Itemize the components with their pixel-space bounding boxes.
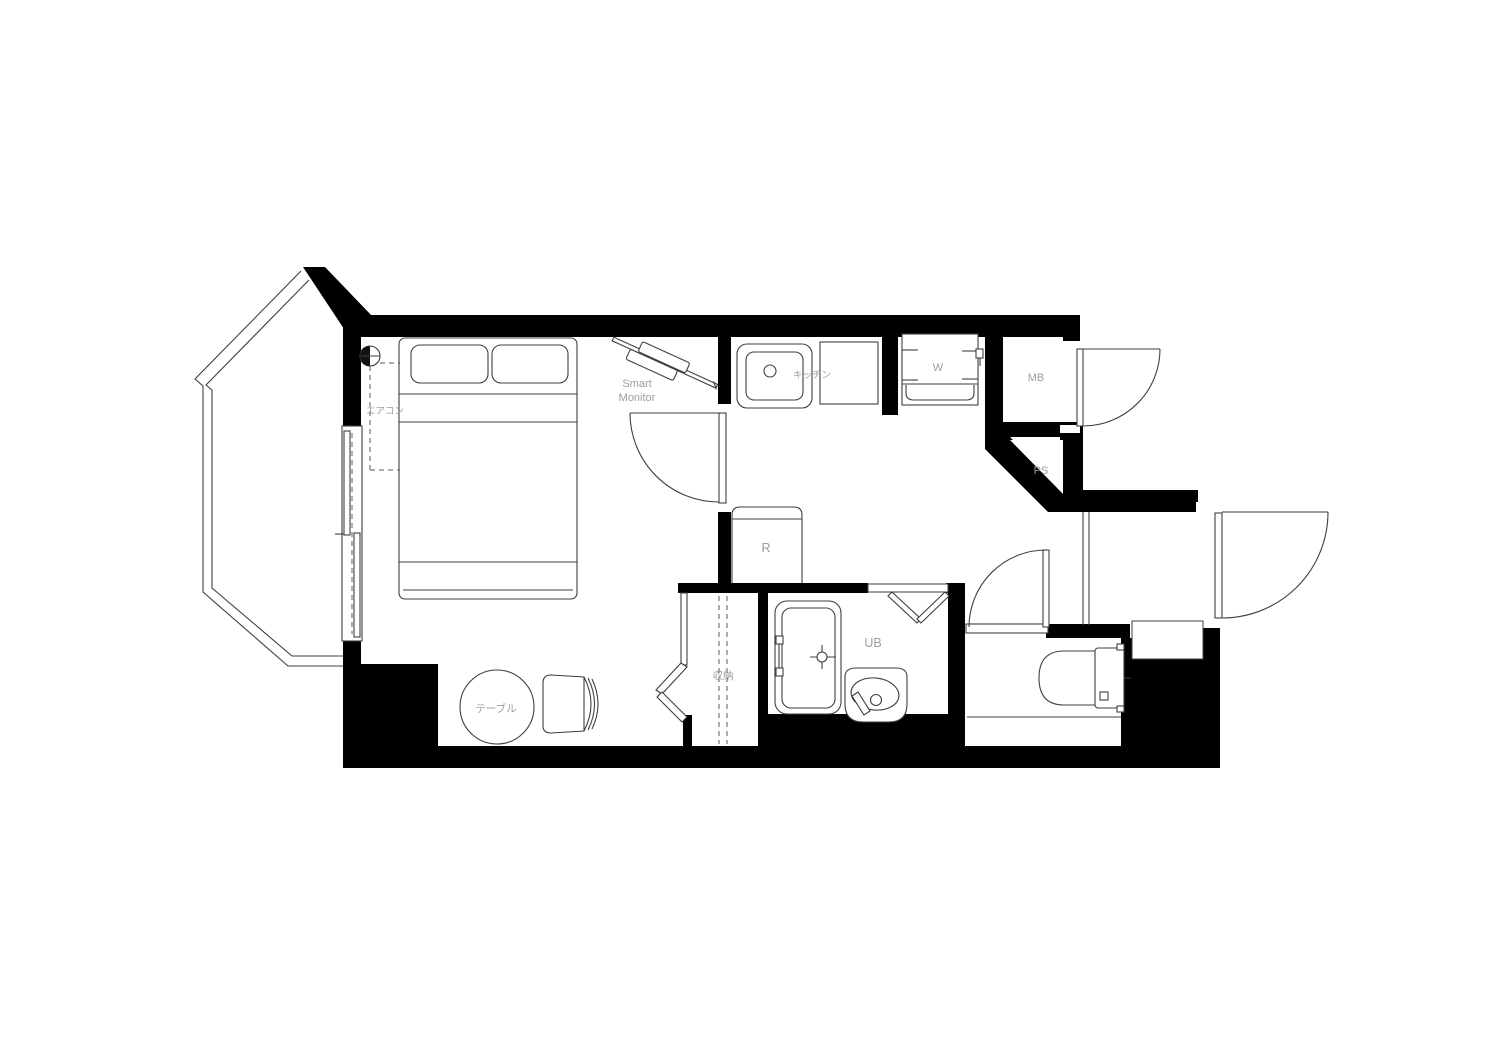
window-sash-lower	[354, 533, 360, 637]
washbasin-faucet	[871, 695, 882, 706]
kitchen-label: キッチン	[793, 370, 831, 381]
unit-bath: UB	[775, 592, 949, 722]
toilet-tank-tab-bottom	[1117, 706, 1124, 712]
smart-monitor-label-1: Smart	[622, 378, 651, 390]
mb-door-leaf	[1077, 349, 1083, 426]
toilet-tank-detail	[1100, 692, 1108, 700]
wall-right-above-mb-door	[1063, 315, 1080, 343]
washer-tap	[976, 349, 983, 358]
smart-monitor-label-2: Monitor	[619, 392, 656, 404]
balcony	[195, 271, 343, 666]
wall-storage-bath	[758, 593, 768, 748]
wall-toilet-top	[1046, 624, 1130, 638]
toilet-door-swing-arc	[969, 550, 1046, 627]
kitchen: キッチン	[737, 342, 878, 408]
chair	[543, 675, 598, 733]
balcony-inner-line	[206, 280, 343, 656]
toilet-tank-tab-top	[1117, 644, 1124, 650]
bed	[399, 338, 577, 599]
bath-fold-door-left	[888, 592, 921, 623]
entrance-porch	[1132, 621, 1203, 659]
bathtub-grab-top	[776, 636, 783, 644]
toilet-tank	[1095, 648, 1124, 708]
unit-bath-label: UB	[864, 636, 881, 650]
bedroom-door-jamb-top	[717, 404, 732, 413]
wall-bottom	[343, 746, 1220, 768]
storage-fold-door-upper	[656, 663, 687, 694]
aircon-label: エアコン	[366, 406, 404, 417]
wall-bedroom-hall-upper	[718, 337, 731, 413]
bathtub-grab-bottom	[776, 668, 783, 676]
bedroom-door-leaf	[719, 413, 726, 503]
entrance-door-swing-arc	[1222, 512, 1328, 618]
chair-back-1	[584, 677, 591, 731]
pillow-right	[492, 345, 568, 383]
floor-plan-canvas: エアコン Smart Monitor テーブル	[0, 0, 1500, 1060]
refrigerator: R	[732, 507, 802, 583]
washer-label: W	[933, 362, 944, 374]
table-set: テーブル	[460, 670, 598, 744]
pillow-left	[411, 345, 488, 383]
bath-door-track	[868, 584, 948, 592]
toilet-door	[966, 550, 1049, 633]
bathtub-faucet	[817, 652, 827, 662]
entrance-door-leaf	[1215, 513, 1222, 618]
aircon-symbol: エアコン	[360, 346, 404, 470]
storage-fold-door-lower	[657, 692, 687, 722]
pipe-space-label: PS	[1034, 465, 1049, 477]
toilet-door-leaf	[1043, 550, 1049, 627]
floor-plan-page: エアコン Smart Monitor テーブル	[0, 0, 1500, 1060]
window-sash-upper	[344, 431, 350, 535]
bath-fold-door	[888, 592, 949, 623]
wall-storage-top	[678, 583, 868, 593]
storage: 収納	[656, 593, 734, 744]
sliding-window	[335, 426, 362, 641]
toilet-door-threshold	[966, 624, 1048, 633]
wall-bedroom-hall-lower	[718, 503, 731, 585]
kitchen-faucet	[764, 365, 776, 377]
bedroom-door-swing-arc	[630, 413, 719, 502]
wall-genkan-top	[1063, 490, 1198, 512]
mb-door-jamb-top	[1060, 341, 1080, 349]
wall-corner-block	[361, 664, 438, 748]
table-label: テーブル	[475, 702, 516, 715]
balcony-outer-line	[195, 271, 343, 666]
wall-right-below-mb	[1060, 430, 1083, 492]
wall-left-upper	[343, 311, 361, 432]
wall-left-lower	[343, 636, 361, 748]
bath-fold-door-right	[917, 592, 949, 623]
washbasin	[845, 668, 907, 722]
toilet	[1039, 644, 1131, 712]
toilet-bowl	[1039, 651, 1096, 705]
entrance-door-jamb-top	[1196, 502, 1222, 513]
wall-mb-left	[985, 332, 1003, 422]
mb-door-swing-arc	[1083, 349, 1160, 426]
storage-door-panel	[681, 593, 687, 665]
bedroom-door	[630, 413, 726, 503]
bedroom-door-jamb-bottom	[717, 503, 732, 512]
meter-box-label: MB	[1028, 372, 1045, 384]
washer-pan: W	[902, 334, 983, 405]
entrance	[1083, 512, 1328, 625]
wall-kitchen-washer	[882, 337, 898, 415]
smart-monitor: Smart Monitor	[608, 330, 722, 404]
storage-label: 収納	[713, 669, 734, 682]
refrigerator-label: R	[761, 541, 770, 555]
bathtub	[775, 601, 841, 714]
chair-seat	[543, 675, 584, 733]
